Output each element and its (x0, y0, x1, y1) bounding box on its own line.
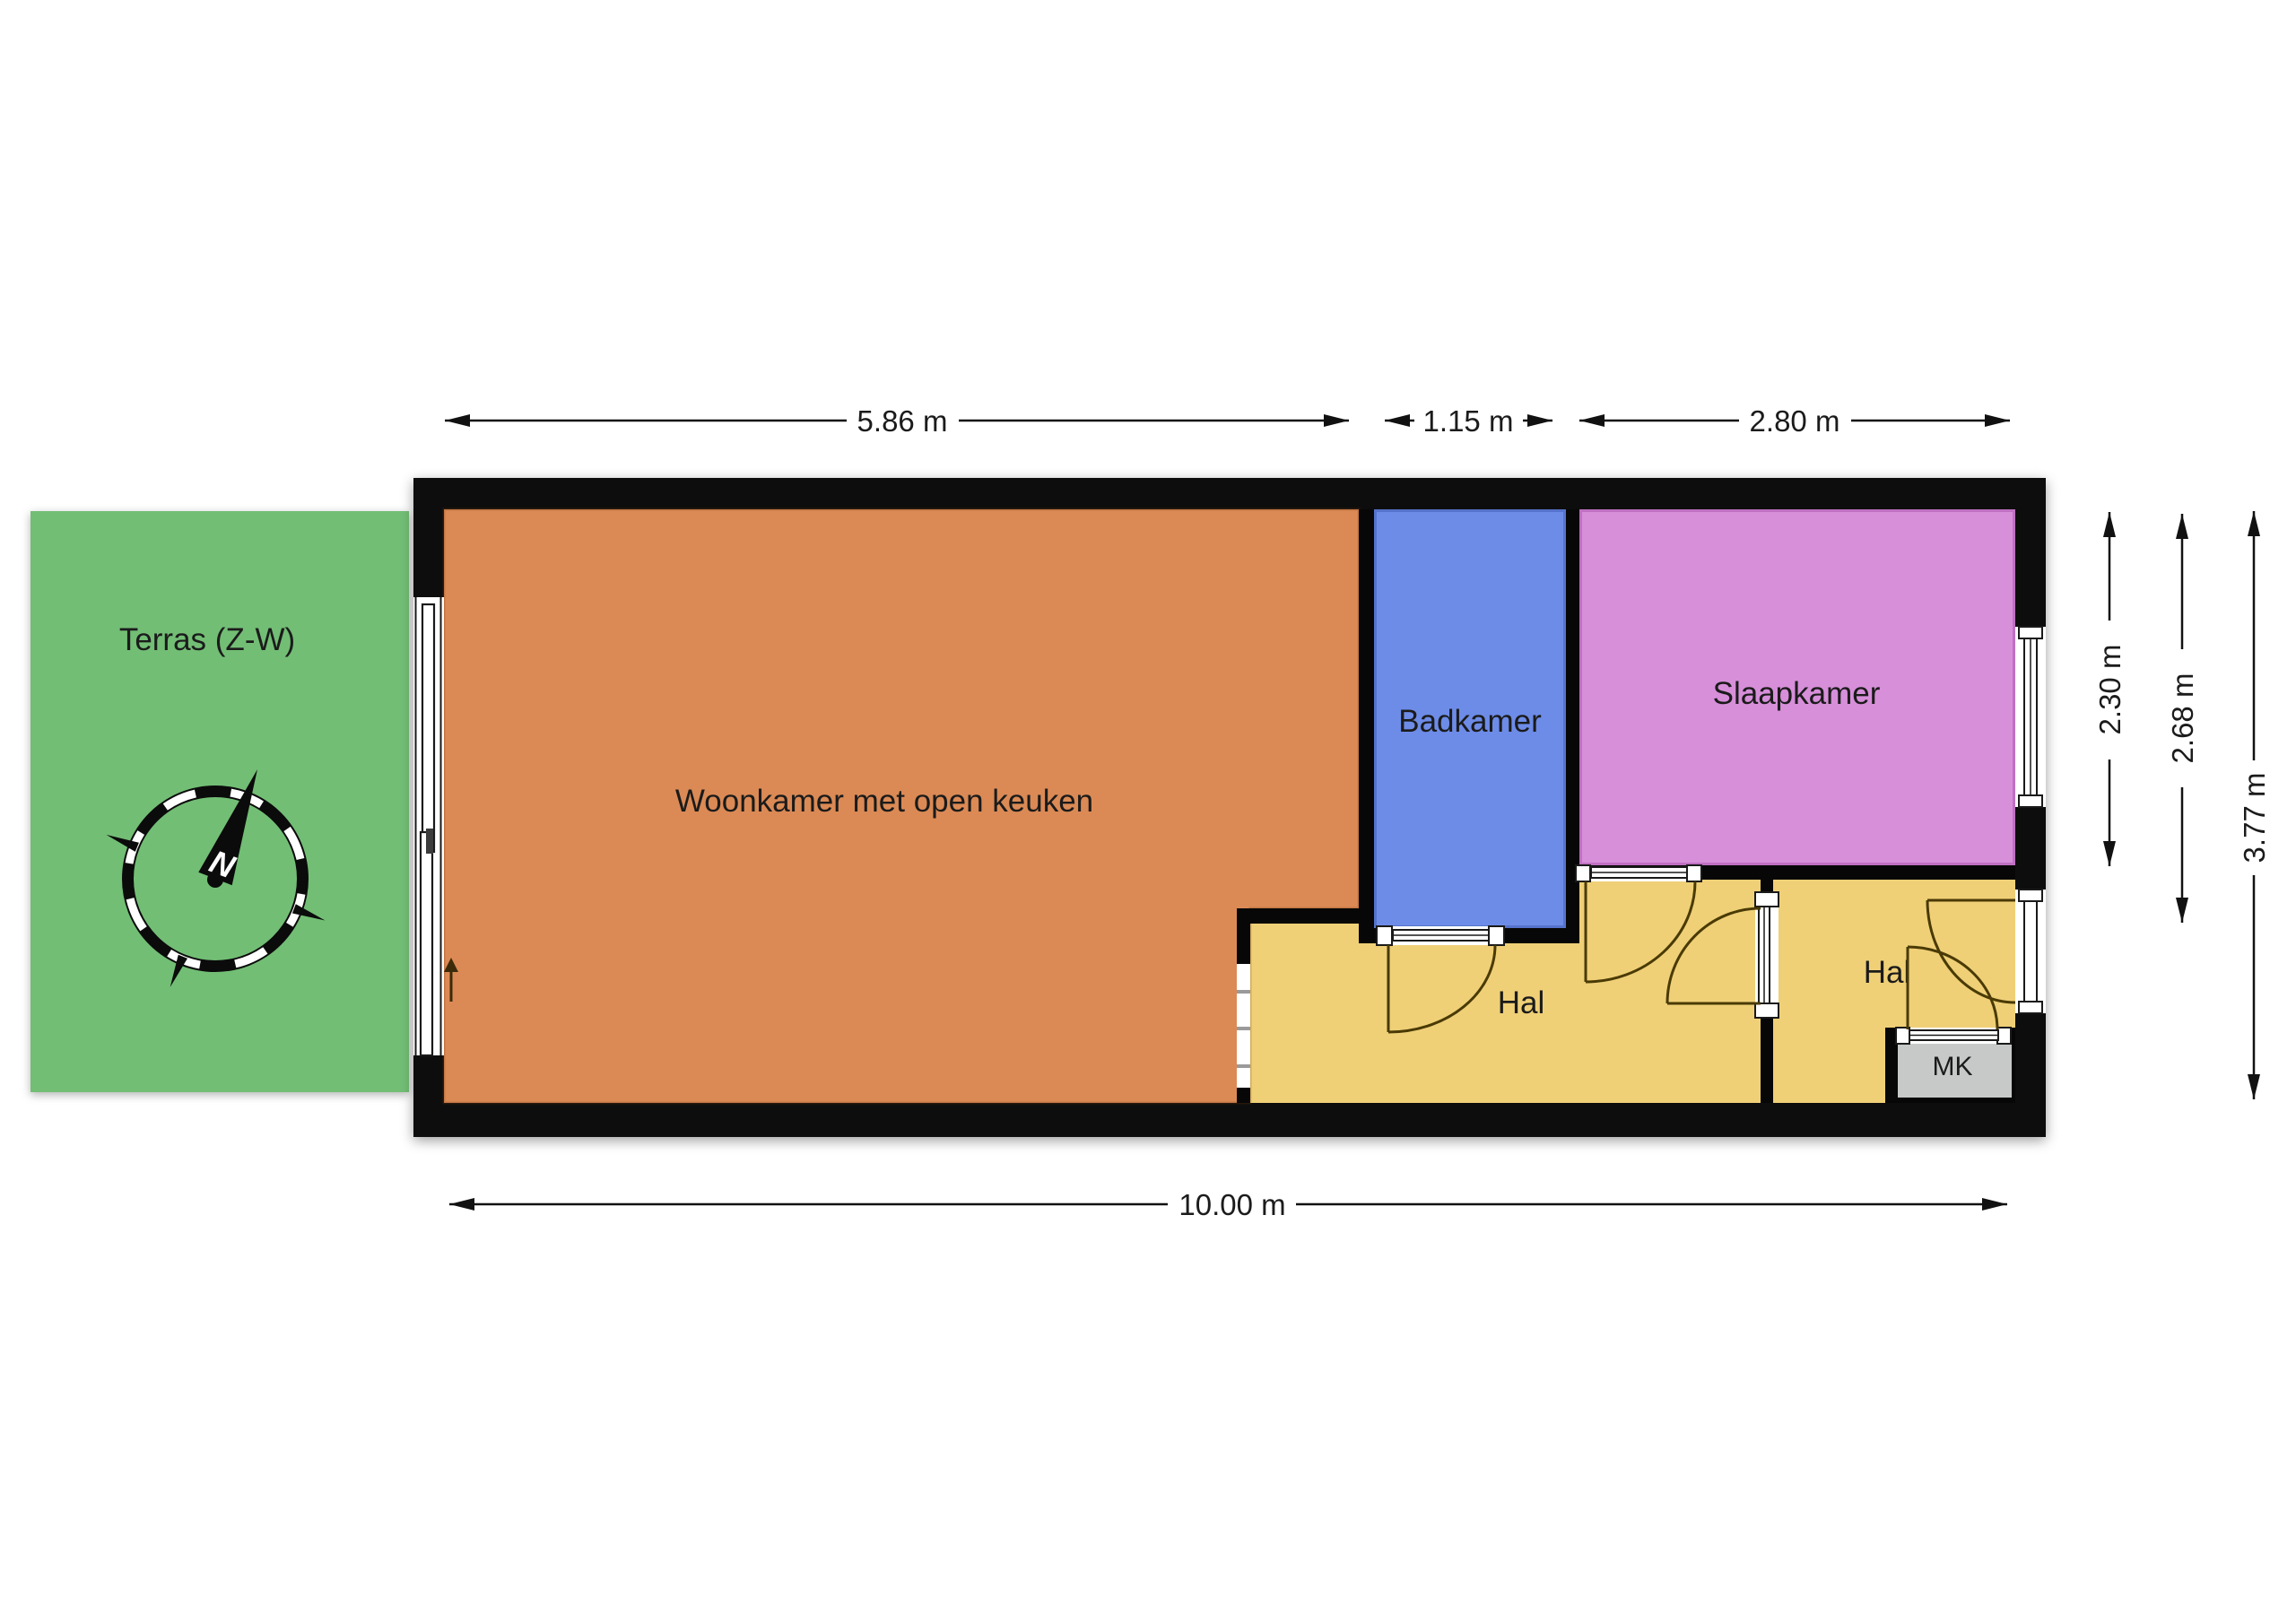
svg-text:Hal: Hal (1498, 985, 1545, 1020)
svg-text:Woonkamer met open keuken: Woonkamer met open keuken (675, 784, 1093, 819)
svg-text:2.80 m: 2.80 m (1750, 404, 1840, 438)
svg-text:3.77 m: 3.77 m (2238, 773, 2271, 864)
svg-text:10.00 m: 10.00 m (1178, 1188, 1285, 1221)
svg-text:Terras (Z-W): Terras (Z-W) (119, 622, 295, 657)
svg-text:5.86 m: 5.86 m (857, 404, 948, 438)
svg-text:Badkamer: Badkamer (1398, 704, 1542, 739)
svg-text:2.30 m: 2.30 m (2093, 645, 2126, 735)
svg-text:MK: MK (1933, 1052, 1973, 1081)
svg-text:Slaapkamer: Slaapkamer (1713, 676, 1881, 711)
svg-text:Hal: Hal (1864, 955, 1911, 990)
svg-text:1.15 m: 1.15 m (1423, 404, 1514, 438)
svg-text:2.68 m: 2.68 m (2166, 673, 2199, 764)
